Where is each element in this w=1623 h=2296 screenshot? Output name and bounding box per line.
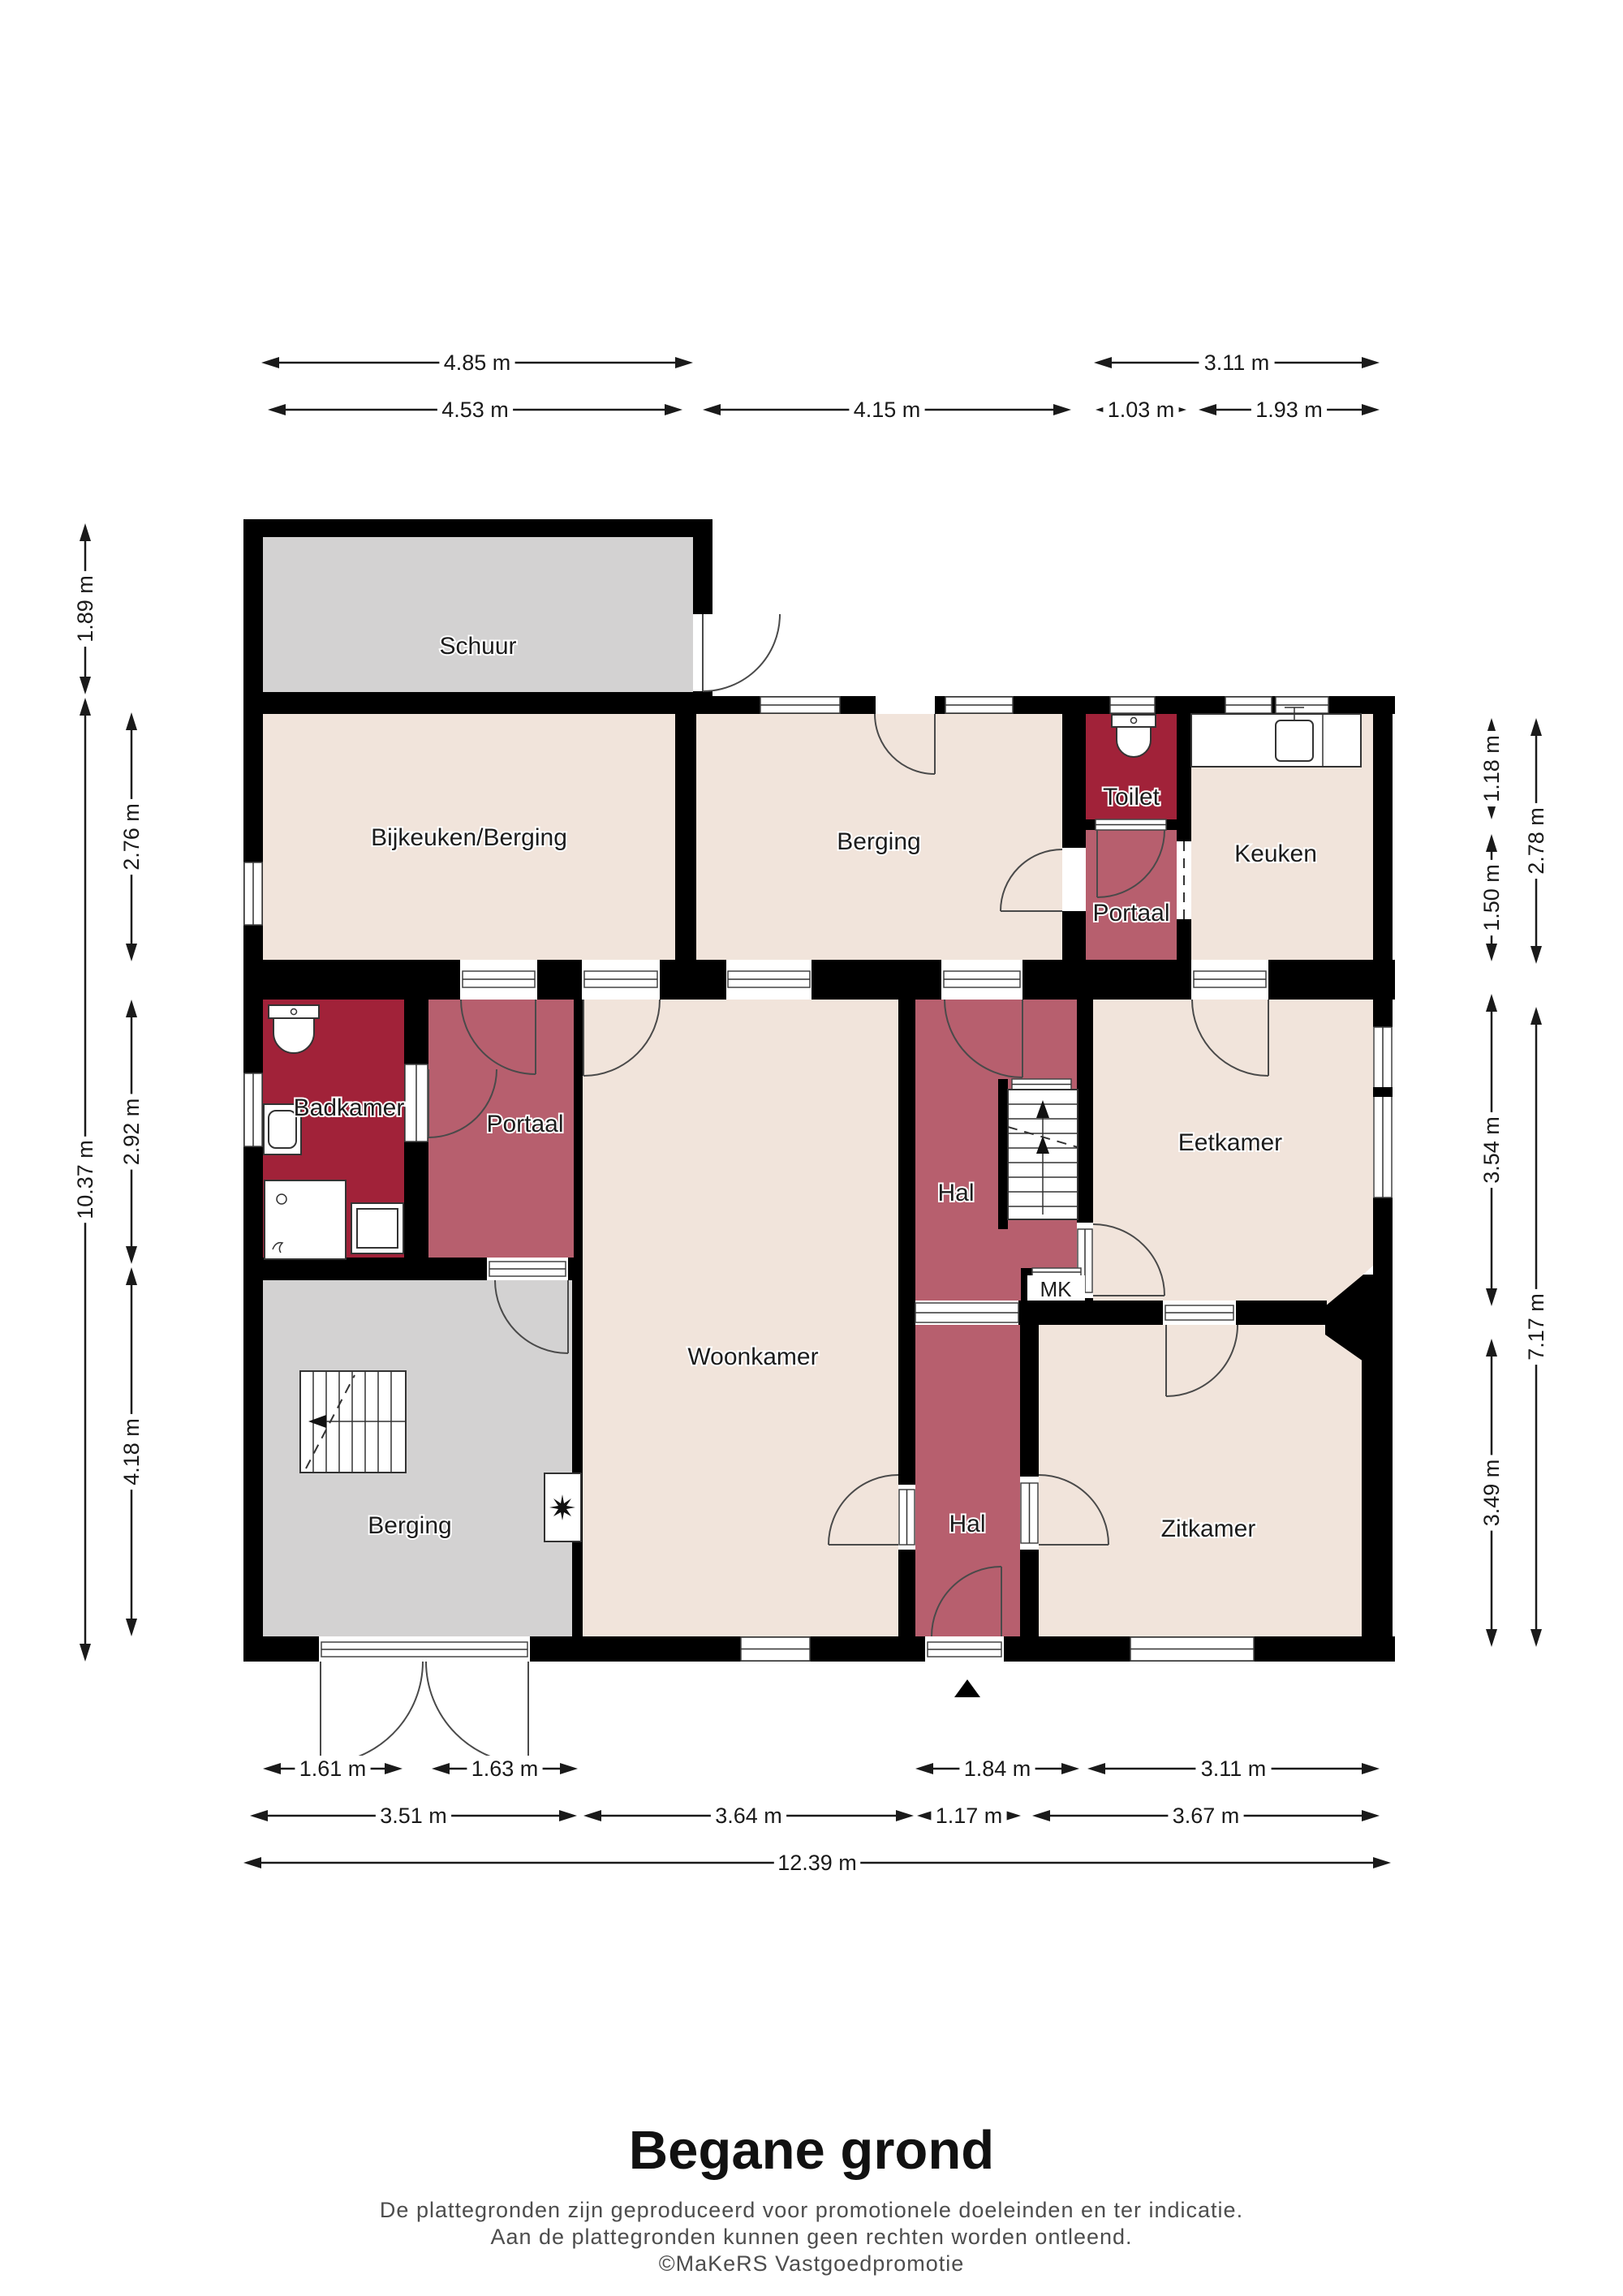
dimension-label: 3.54 m bbox=[1479, 1116, 1504, 1184]
door-opening bbox=[876, 696, 935, 714]
dimension: 3.54 m bbox=[1479, 994, 1505, 1306]
room-label-berging-lower: Berging bbox=[368, 1512, 451, 1539]
dimension-label: 1.89 m bbox=[73, 575, 97, 643]
floorplan-drawing: Schuur Bijkeuken/Berging Berging Toilet … bbox=[0, 0, 1623, 2296]
dimension: 1.84 m bbox=[915, 1756, 1079, 1782]
disclaimer-line-1: De plattegronden zijn geproduceerd voor … bbox=[0, 2197, 1623, 2224]
room-woonkamer bbox=[583, 1000, 898, 1636]
room-label-toilet: Toilet bbox=[1103, 784, 1160, 810]
dimension-label: 2.92 m bbox=[119, 1099, 144, 1166]
dimension-label: 1.93 m bbox=[1255, 398, 1323, 422]
dimension-label: 4.53 m bbox=[441, 398, 509, 422]
room-portaal-right bbox=[1086, 830, 1177, 960]
disclaimer-line-3: ©MaKeRS Vastgoedpromotie bbox=[0, 2251, 1623, 2277]
room-zitkamer bbox=[1039, 1325, 1362, 1636]
dimension-label: 1.61 m bbox=[299, 1756, 367, 1781]
dimension-label: 1.17 m bbox=[936, 1804, 1003, 1828]
dimension: 4.15 m bbox=[703, 397, 1071, 423]
dimension-label: 1.63 m bbox=[471, 1756, 539, 1781]
dimension-label: 4.85 m bbox=[444, 350, 511, 375]
dimension: 4.53 m bbox=[268, 397, 682, 423]
dimension-label: 3.51 m bbox=[380, 1804, 447, 1828]
dimension: 2.92 m bbox=[118, 1000, 144, 1264]
dimension-label: 4.18 m bbox=[119, 1418, 144, 1486]
dimension-label: 10.37 m bbox=[73, 1140, 97, 1219]
dimension: 1.93 m bbox=[1199, 397, 1380, 423]
floorplan-page: Schuur Bijkeuken/Berging Berging Toilet … bbox=[0, 0, 1623, 2296]
dimension: 12.39 m bbox=[243, 1850, 1391, 1876]
entrance-arrow-icon bbox=[954, 1679, 980, 1697]
room-label-schuur: Schuur bbox=[439, 633, 516, 660]
dimension-label: 7.17 m bbox=[1524, 1293, 1548, 1361]
stove-icon bbox=[545, 1473, 581, 1541]
room-label-bijkeuken: Bijkeuken/Berging bbox=[371, 824, 567, 851]
room-label-zitkamer: Zitkamer bbox=[1161, 1516, 1256, 1542]
dimension: 3.11 m bbox=[1094, 350, 1380, 376]
door-opening bbox=[1062, 848, 1086, 911]
room-label-portaal-left: Portaal bbox=[486, 1111, 563, 1137]
dimension: 4.18 m bbox=[118, 1267, 144, 1636]
dimension: 3.67 m bbox=[1032, 1803, 1380, 1829]
shower-icon bbox=[265, 1180, 346, 1259]
dimension-label: 1.03 m bbox=[1108, 398, 1175, 422]
dimension-label: 2.78 m bbox=[1524, 807, 1548, 875]
dimension: 1.50 m bbox=[1479, 834, 1505, 961]
dimension: 4.85 m bbox=[261, 350, 693, 376]
dimension-label: 4.15 m bbox=[854, 398, 921, 422]
dimension: 3.51 m bbox=[250, 1803, 577, 1829]
dimension-label: 3.67 m bbox=[1173, 1804, 1240, 1828]
room-label-portaal-right: Portaal bbox=[1092, 900, 1169, 927]
kitchen-counter bbox=[1191, 707, 1361, 767]
room-label-eetkamer: Eetkamer bbox=[1178, 1129, 1282, 1156]
dimension: 1.63 m bbox=[432, 1756, 578, 1782]
room-hal-lower bbox=[915, 1325, 1020, 1636]
dimension: 3.49 m bbox=[1479, 1339, 1505, 1647]
room-label-hal-lower: Hal bbox=[949, 1511, 985, 1537]
dimension: 1.61 m bbox=[263, 1756, 403, 1782]
disclaimer: De plattegronden zijn geproduceerd voor … bbox=[0, 2197, 1623, 2277]
room-label-meterkast: MK bbox=[1040, 1277, 1073, 1301]
room-label-hal-upper: Hal bbox=[937, 1180, 974, 1206]
dimension: 1.89 m bbox=[72, 523, 98, 694]
room-label-badkamer: Badkamer bbox=[294, 1094, 405, 1121]
dimension-label: 1.84 m bbox=[964, 1756, 1031, 1781]
dimension: 1.18 m bbox=[1479, 718, 1505, 819]
room-label-berging-top: Berging bbox=[837, 828, 920, 855]
stairs-up-icon bbox=[1008, 1090, 1078, 1219]
dimension-label: 3.49 m bbox=[1479, 1460, 1504, 1527]
room-label-keuken: Keuken bbox=[1234, 841, 1317, 867]
washer-icon bbox=[351, 1203, 403, 1253]
dimension: 2.78 m bbox=[1523, 718, 1549, 964]
dimension-label: 3.64 m bbox=[715, 1804, 782, 1828]
dimension-label: 3.11 m bbox=[1204, 350, 1270, 375]
dimension-label: 3.11 m bbox=[1201, 1756, 1267, 1781]
dimension: 3.64 m bbox=[583, 1803, 914, 1829]
dimension: 1.03 m bbox=[1096, 397, 1186, 423]
stairs-up-icon bbox=[300, 1371, 406, 1473]
dimension-label: 1.18 m bbox=[1479, 735, 1504, 802]
room-label-woonkamer: Woonkamer bbox=[687, 1344, 818, 1370]
dimension-label: 1.50 m bbox=[1479, 864, 1504, 931]
dimension: 1.17 m bbox=[917, 1803, 1021, 1829]
dimension: 3.11 m bbox=[1087, 1756, 1380, 1782]
disclaimer-line-2: Aan de plattegronden kunnen geen rechten… bbox=[0, 2224, 1623, 2251]
room-schuur bbox=[263, 537, 693, 692]
dimension-label: 2.76 m bbox=[119, 803, 144, 871]
dimension: 7.17 m bbox=[1523, 1007, 1549, 1647]
page-title: Begane grond bbox=[0, 2119, 1623, 2182]
dimension: 2.76 m bbox=[118, 712, 144, 961]
dimension-label: 12.39 m bbox=[777, 1851, 857, 1875]
dimension: 10.37 m bbox=[72, 698, 98, 1662]
